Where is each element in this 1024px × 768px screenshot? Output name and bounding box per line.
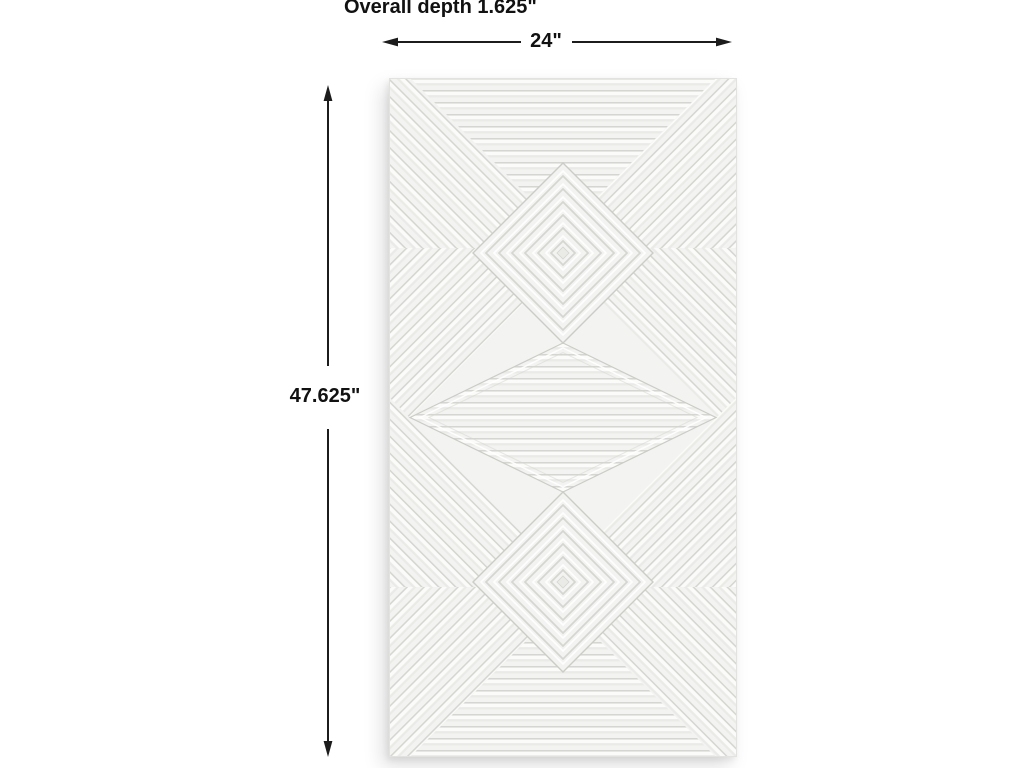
- panel-illustration: [389, 78, 737, 757]
- product-image: [389, 78, 737, 757]
- dimension-diagram: Overall depth 1.625" 24" 47.625": [0, 0, 1024, 768]
- arrow-left-icon: [382, 38, 398, 47]
- arrow-down-icon: [324, 741, 333, 757]
- arrow-up-icon: [324, 85, 333, 101]
- arrow-right-icon: [716, 38, 732, 47]
